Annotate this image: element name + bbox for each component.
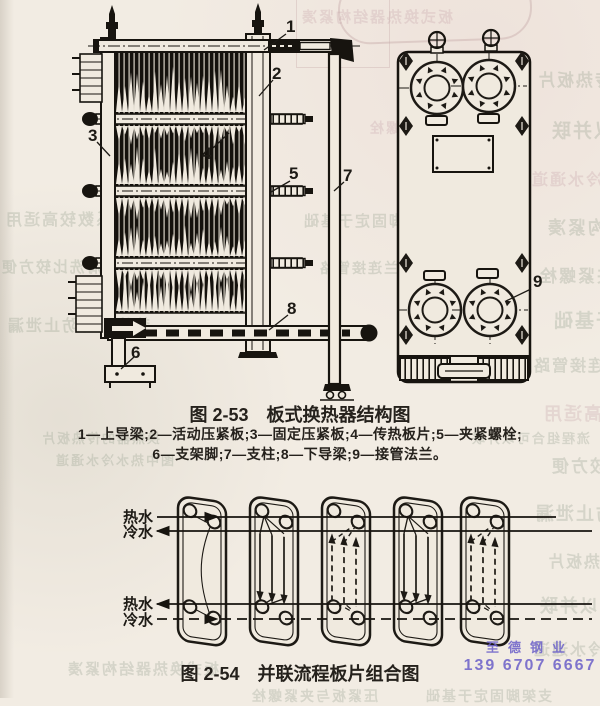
hot-water-label-bottom: 热水 [123, 595, 154, 613]
heat-plate [394, 496, 442, 647]
heat-plate [178, 496, 226, 647]
plate-port [491, 611, 504, 625]
figure-254-caption-title: 并联流程板片组合图 [258, 664, 420, 684]
support-column [320, 54, 354, 400]
plate-port [256, 600, 269, 614]
plate-port [328, 600, 341, 614]
figure-253-caption-number: 图 2-53 [189, 405, 248, 425]
plate-port [352, 611, 365, 625]
plate-port [184, 600, 197, 614]
lifting-eyes [429, 30, 499, 53]
cold-water-label-bottom: 冷水 [123, 611, 154, 629]
heat-plate [461, 496, 509, 647]
callout-1: 1 [286, 17, 295, 36]
callout-7: 7 [343, 166, 352, 185]
plate-port [184, 504, 197, 518]
heat-transfer-plate-pack [115, 52, 246, 313]
front-view-plate: 9 [397, 30, 542, 382]
cold-water-label-top: 冷水 [123, 523, 154, 541]
figure-2-53-drawing: 1 2 3 4 5 6 7 8 [0, 0, 600, 402]
plate-port [424, 611, 437, 625]
callout-8: 8 [287, 299, 296, 318]
scanned-book-page: 换热器的传热板片流程组合可以并联图中热水冷水通道板式换热器结构紧凑压紧板与夹紧螺… [0, 0, 600, 698]
pipe-flange-stack-bottom [68, 276, 102, 332]
plate-port [256, 504, 269, 518]
fixed-pressure-plate [101, 38, 115, 338]
figure-254-caption-number: 图 2-54 [180, 664, 239, 684]
bottom-pipe-elbow [104, 318, 146, 338]
plate-port [280, 611, 293, 625]
plate-port [328, 504, 341, 518]
callout-3: 3 [88, 126, 97, 145]
callout-9: 9 [533, 272, 542, 291]
figure-253-caption-title: 板式换热器结构图 [267, 405, 411, 425]
plate-port [467, 504, 480, 518]
pipe-flange-stack-top [72, 54, 102, 102]
figure-253-legend-line2: 6—支架脚;7—支柱;8—下导梁;9—接管法兰。 [0, 444, 600, 464]
plate-port [467, 600, 480, 614]
figure-253-legend-line1: 1—上导梁;2—活动压紧板;3—固定压紧板;4—传热板片;5—夹紧螺栓; [0, 424, 600, 444]
exploded-view-assembly: 1 2 3 4 5 6 7 8 [68, 3, 378, 400]
callout-2: 2 [272, 64, 281, 83]
plate-top-bolts [106, 3, 264, 37]
callout-5: 5 [289, 164, 298, 183]
heat-plate [322, 496, 370, 647]
plate-sequence [178, 496, 509, 647]
plate-port [400, 600, 413, 614]
figure-254-caption: 图 2-54并联流程板片组合图 [0, 660, 600, 686]
nameplate [433, 136, 493, 172]
heat-plate [250, 496, 298, 647]
plate-port [400, 504, 413, 518]
callout-6: 6 [131, 343, 140, 362]
support-foot [105, 338, 155, 388]
callout-4: 4 [202, 144, 212, 163]
